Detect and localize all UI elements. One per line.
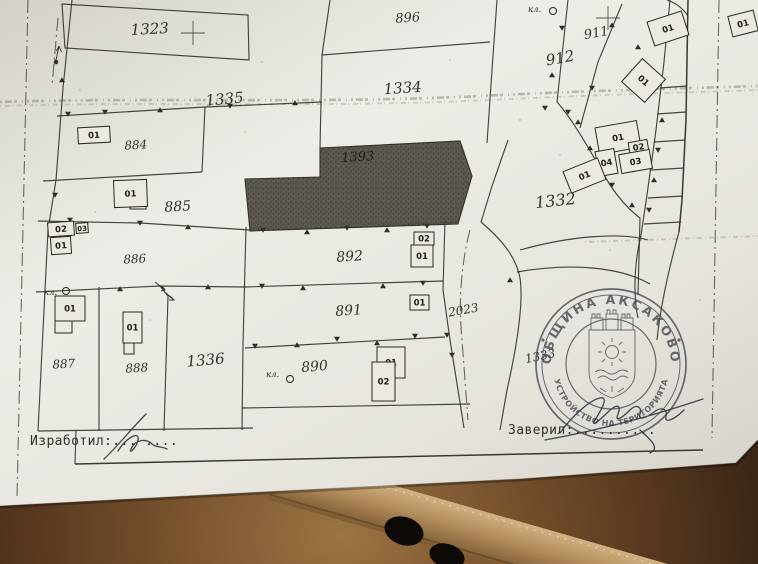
kl-marker-label: кл. <box>44 288 57 298</box>
photo-scene: 0101020301010102010101020102030401010101… <box>0 0 758 564</box>
parcel-label-1336: 1336 <box>186 349 226 370</box>
building-02: 02 <box>48 221 75 237</box>
building-number: 01 <box>55 241 68 252</box>
parcel-label-891: 891 <box>335 302 363 320</box>
building-number: 01 <box>414 299 426 309</box>
parcel-label-886: 886 <box>123 251 147 266</box>
parcel-label-1335: 1335 <box>205 88 245 109</box>
building-01: 01 <box>123 312 142 343</box>
parcel-label-884: 884 <box>124 137 148 152</box>
building-number: 01 <box>64 305 76 315</box>
parcel-label-887: 887 <box>52 356 76 371</box>
building-number: 04 <box>600 158 613 170</box>
building-number: 01 <box>127 324 139 334</box>
parcel-label-1323: 1323 <box>130 19 169 39</box>
building-number: 01 <box>611 133 624 145</box>
parcel-label-1393: 1393 <box>341 149 375 166</box>
building-01: 01 <box>410 295 429 310</box>
parcel-label-896: 896 <box>395 10 421 27</box>
building-02: 02 <box>414 232 434 245</box>
parcel-label-888: 888 <box>125 360 149 375</box>
kl-marker-label: кл. <box>528 5 541 15</box>
building-01: 01 <box>411 245 433 267</box>
building-01: 01 <box>78 126 111 144</box>
building-number: 02 <box>378 378 390 388</box>
building-number: 02 <box>418 235 430 245</box>
building-01: 01 <box>114 179 148 207</box>
parcel-label-892: 892 <box>336 248 364 266</box>
building-number: 01 <box>416 252 428 262</box>
kl-marker-label: кл. <box>266 370 279 380</box>
building-01: 01 <box>50 236 71 254</box>
building-number: 01 <box>124 189 136 199</box>
building-number: 02 <box>55 225 68 236</box>
parcel-label-1334: 1334 <box>383 78 422 99</box>
building-02: 02 <box>372 362 395 401</box>
building-number: 01 <box>88 131 100 142</box>
cadastral-photo: 0101020301010102010101020102030401010101… <box>0 0 758 564</box>
parcel-label-885: 885 <box>164 198 192 215</box>
building-number: 03 <box>77 225 87 234</box>
parcel-label-890: 890 <box>301 358 329 376</box>
building-03: 03 <box>76 223 89 234</box>
building-01: 01 <box>55 296 85 321</box>
building-number: 03 <box>629 157 642 169</box>
